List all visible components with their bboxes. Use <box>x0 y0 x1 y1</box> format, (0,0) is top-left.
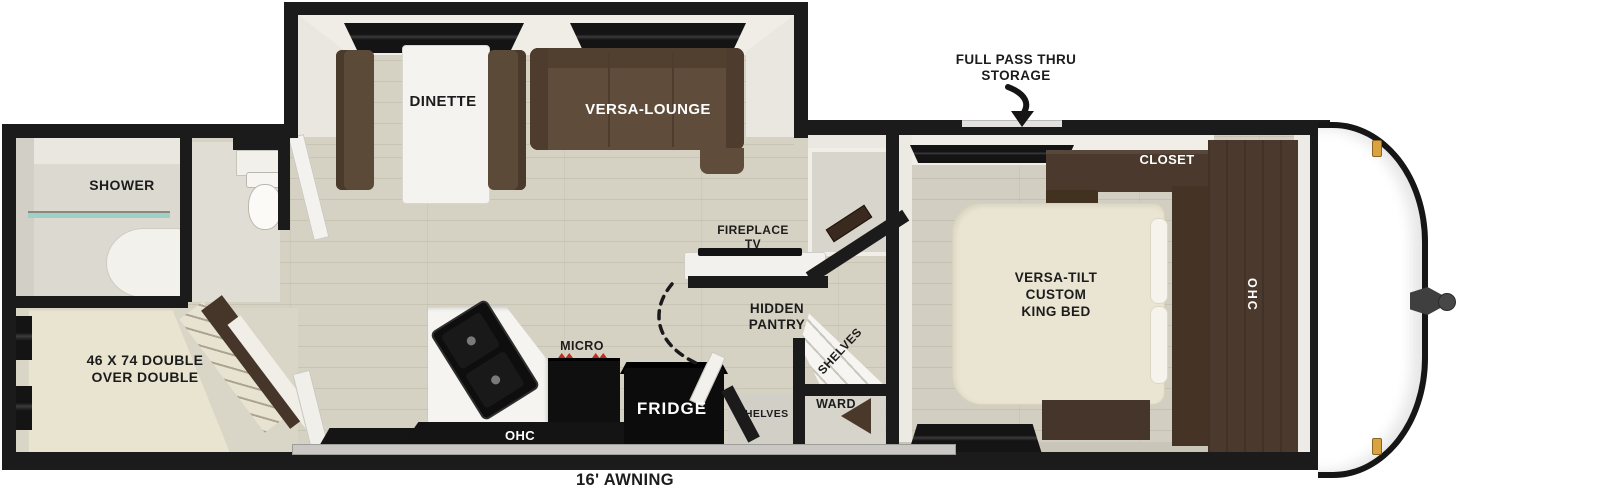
shelves-horizontal-wall <box>793 384 890 396</box>
shower-room-top-band <box>16 138 180 164</box>
versa-lounge-arm-left <box>530 48 548 150</box>
pass-thru-storage-label: FULL PASS THRU STORAGE <box>926 52 1106 84</box>
hall-shelves-label: SHELVES <box>733 408 793 421</box>
bed-foot-bench <box>1042 400 1150 440</box>
kitchen-ohc-label: OHC <box>490 428 550 444</box>
king-bed-line2: CUSTOM <box>986 287 1126 304</box>
slideout-top-wall <box>284 2 808 15</box>
bed-pillow <box>1150 306 1168 384</box>
hall-top-band <box>808 133 888 149</box>
micro-label: MICRO <box>552 339 612 354</box>
toilet-bowl-icon <box>248 184 282 230</box>
bunk-line2: OVER DOUBLE <box>40 369 250 386</box>
awning-label: 16' AWNING <box>545 471 705 488</box>
shower-pan <box>106 228 182 298</box>
dinette-label: DINETTE <box>393 93 493 111</box>
dinette-table <box>402 45 490 204</box>
king-bed-line1: VERSA-TILT <box>986 270 1126 287</box>
fireplace-line2: TV <box>713 237 793 251</box>
dinette-bench-right <box>488 50 526 190</box>
bunk-top-wall <box>2 296 188 308</box>
pass-thru-line2: STORAGE <box>926 68 1106 84</box>
shower-glass-line-icon <box>28 213 170 218</box>
bedroom-ohc-label: OHC <box>1244 278 1259 312</box>
pass-thru-arrow-icon <box>996 84 1048 128</box>
king-bed-line3: KING BED <box>986 304 1126 321</box>
slideout-right-wall <box>794 2 808 138</box>
versa-lounge-backrest <box>530 48 744 68</box>
fireplace-tv-label: FIREPLACE TV <box>713 223 793 252</box>
bed-head-cabinet <box>1172 186 1210 446</box>
door-swing-icon <box>642 280 722 376</box>
hidden-pantry-line1: HIDDEN <box>722 301 832 317</box>
fridge-label: FRIDGE <box>622 399 722 419</box>
tv-nook <box>808 148 894 256</box>
bunk-line1: 46 X 74 DOUBLE <box>40 352 250 369</box>
marker-light-icon <box>1372 438 1382 455</box>
fireplace-line1: FIREPLACE <box>713 223 793 237</box>
versa-lounge-seam <box>608 52 610 147</box>
hitch-ball-icon <box>1438 293 1456 311</box>
versa-lounge-arm-right <box>726 48 744 150</box>
top-wall-left <box>2 124 296 138</box>
versa-lounge-seam <box>672 52 674 147</box>
versa-lounge-label: VERSA-LOUNGE <box>578 101 718 119</box>
marker-light-icon <box>1372 140 1382 157</box>
bunk-window-icon <box>16 386 32 430</box>
hidden-pantry-label: HIDDEN PANTRY <box>722 301 832 333</box>
floorplan-diagram: FULL PASS THRU STORAGE DINETTE VERSA-LOU… <box>0 0 1600 488</box>
versa-lounge-chaise <box>700 148 744 174</box>
shower-right-wall <box>180 130 192 302</box>
awning-rail <box>292 444 956 455</box>
pass-thru-line1: FULL PASS THRU <box>926 52 1106 68</box>
slideout-left-wall <box>284 2 298 138</box>
bedroom-left-band <box>899 135 912 445</box>
bed-pillow <box>1150 218 1168 304</box>
shower-room-left-shade <box>16 138 34 302</box>
bedroom-divider-wall <box>886 133 899 455</box>
ward-label: WARD <box>806 397 866 412</box>
dinette-bench-left <box>336 50 374 190</box>
hidden-pantry-line2: PANTRY <box>722 317 832 333</box>
king-bed-label: VERSA-TILT CUSTOM KING BED <box>986 270 1126 321</box>
shower-label: SHOWER <box>82 177 162 194</box>
bunk-label: 46 X 74 DOUBLE OVER DOUBLE <box>40 352 250 386</box>
closet-step <box>1046 190 1098 203</box>
bath-corridor-wall <box>278 130 290 230</box>
closet-label: CLOSET <box>1127 152 1207 168</box>
microwave-range <box>548 358 620 427</box>
bunk-window-icon <box>16 316 32 360</box>
top-wall-right <box>796 120 1330 135</box>
